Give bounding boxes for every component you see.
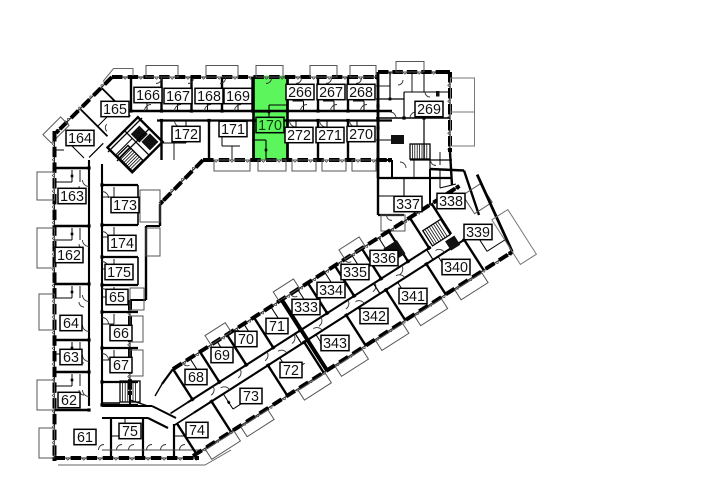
svg-text:170: 170 [258, 118, 282, 134]
svg-text:70: 70 [238, 332, 254, 348]
svg-text:339: 339 [466, 225, 490, 241]
svg-text:64: 64 [63, 316, 79, 332]
svg-text:167: 167 [166, 89, 190, 105]
svg-text:342: 342 [362, 309, 386, 325]
svg-text:65: 65 [109, 290, 125, 306]
svg-text:166: 166 [136, 88, 160, 104]
svg-text:268: 268 [349, 85, 373, 101]
svg-text:266: 266 [288, 85, 312, 101]
svg-text:334: 334 [319, 283, 343, 299]
svg-text:175: 175 [107, 265, 131, 281]
svg-text:71: 71 [269, 319, 285, 335]
svg-text:62: 62 [61, 393, 77, 409]
svg-text:343: 343 [323, 336, 347, 352]
svg-text:169: 169 [226, 89, 250, 105]
svg-text:67: 67 [113, 358, 129, 374]
svg-text:165: 165 [103, 102, 127, 118]
svg-text:75: 75 [122, 424, 138, 440]
svg-text:61: 61 [77, 430, 93, 446]
svg-text:337: 337 [396, 197, 420, 213]
svg-text:173: 173 [113, 198, 137, 214]
svg-text:333: 333 [294, 300, 318, 316]
svg-text:174: 174 [110, 236, 134, 252]
svg-text:335: 335 [343, 265, 367, 281]
svg-text:69: 69 [214, 348, 230, 364]
svg-text:164: 164 [68, 131, 92, 147]
svg-text:68: 68 [188, 370, 204, 386]
svg-text:172: 172 [174, 127, 198, 143]
svg-text:267: 267 [319, 85, 343, 101]
svg-text:270: 270 [349, 127, 373, 143]
svg-text:162: 162 [57, 248, 81, 264]
svg-text:73: 73 [243, 389, 259, 405]
svg-text:272: 272 [287, 128, 311, 144]
svg-text:271: 271 [318, 128, 342, 144]
svg-text:171: 171 [221, 122, 245, 138]
svg-text:168: 168 [197, 89, 221, 105]
svg-text:338: 338 [439, 194, 463, 210]
svg-text:340: 340 [444, 260, 468, 276]
svg-text:341: 341 [401, 289, 425, 305]
svg-text:66: 66 [113, 326, 129, 342]
svg-text:336: 336 [372, 251, 396, 267]
svg-text:269: 269 [417, 102, 441, 118]
svg-text:163: 163 [60, 189, 84, 205]
svg-text:74: 74 [189, 423, 205, 439]
svg-text:63: 63 [63, 350, 79, 366]
svg-text:72: 72 [283, 363, 299, 379]
